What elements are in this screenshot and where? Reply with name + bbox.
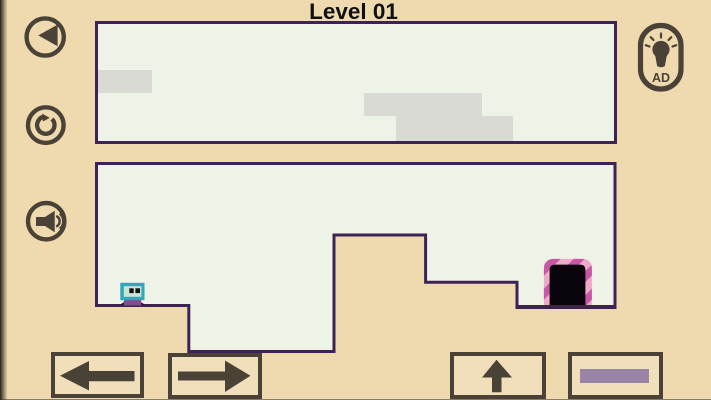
svg-text:AD: AD [652, 71, 670, 85]
